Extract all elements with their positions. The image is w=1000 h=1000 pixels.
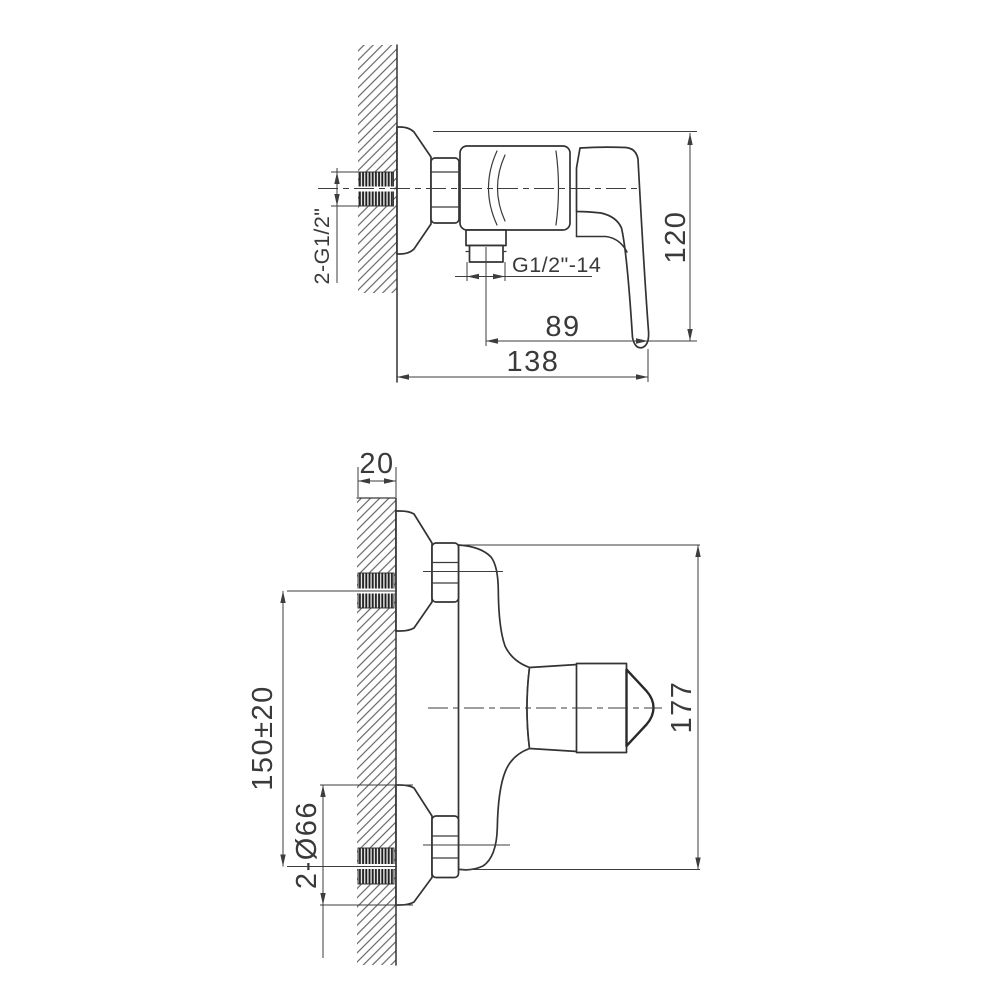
dim-wall-thread-label: 2-G1/2" bbox=[310, 208, 334, 285]
dim-wall-thickness: 20 bbox=[358, 448, 396, 497]
hex-nut-lower bbox=[432, 816, 459, 878]
dim-height-label: 120 bbox=[660, 211, 692, 264]
wall-section-hatch bbox=[358, 45, 397, 293]
hex-nut-upper bbox=[432, 543, 459, 602]
hex-nut-side bbox=[431, 158, 459, 223]
technical-drawing-page: 2-G1/2" G1/2"-14 89 138 bbox=[0, 0, 1000, 1000]
front-view: 20 150±20 2-Ø66 177 bbox=[247, 448, 701, 965]
arrowhead bbox=[695, 545, 700, 557]
dim-wall-thickness-label: 20 bbox=[359, 448, 394, 480]
arrowhead bbox=[695, 858, 700, 870]
arrowhead bbox=[280, 591, 285, 603]
dim-total-height-label: 177 bbox=[666, 681, 698, 734]
arrowhead bbox=[687, 329, 692, 341]
arrowhead bbox=[397, 374, 409, 379]
arrowhead bbox=[636, 374, 648, 379]
dim-escutcheon-diameter-label: 2-Ø66 bbox=[291, 801, 323, 889]
faucet-technical-drawing: 2-G1/2" G1/2"-14 89 138 bbox=[0, 0, 1000, 1000]
arrowhead bbox=[467, 274, 479, 279]
arrowhead bbox=[493, 274, 505, 279]
dim-outlet-thread-label: G1/2"-14 bbox=[512, 253, 601, 277]
lever-outline bbox=[577, 147, 649, 348]
wall-section-hatch-front bbox=[357, 498, 396, 965]
escutcheon-side bbox=[397, 127, 431, 254]
handle-lever-side bbox=[577, 147, 649, 348]
arrowhead bbox=[280, 855, 285, 867]
mixer-body-front bbox=[459, 545, 530, 870]
arrowhead bbox=[486, 338, 498, 343]
dim-spout-to-tip-label: 89 bbox=[545, 311, 580, 343]
side-view: 2-G1/2" G1/2"-14 89 138 bbox=[310, 45, 697, 382]
arrowhead bbox=[334, 194, 339, 206]
dim-wall-thread: 2-G1/2" bbox=[310, 168, 360, 284]
dim-wall-to-tip-label: 138 bbox=[507, 346, 560, 378]
arrowhead bbox=[334, 172, 339, 184]
arrowhead bbox=[320, 785, 325, 797]
dim-inlet-spacing-label: 150±20 bbox=[247, 685, 279, 791]
arrowhead bbox=[687, 133, 692, 145]
lever-boss-edge bbox=[577, 237, 628, 253]
dim-wall-to-tip: 138 bbox=[397, 346, 648, 382]
arrowhead bbox=[320, 893, 325, 905]
